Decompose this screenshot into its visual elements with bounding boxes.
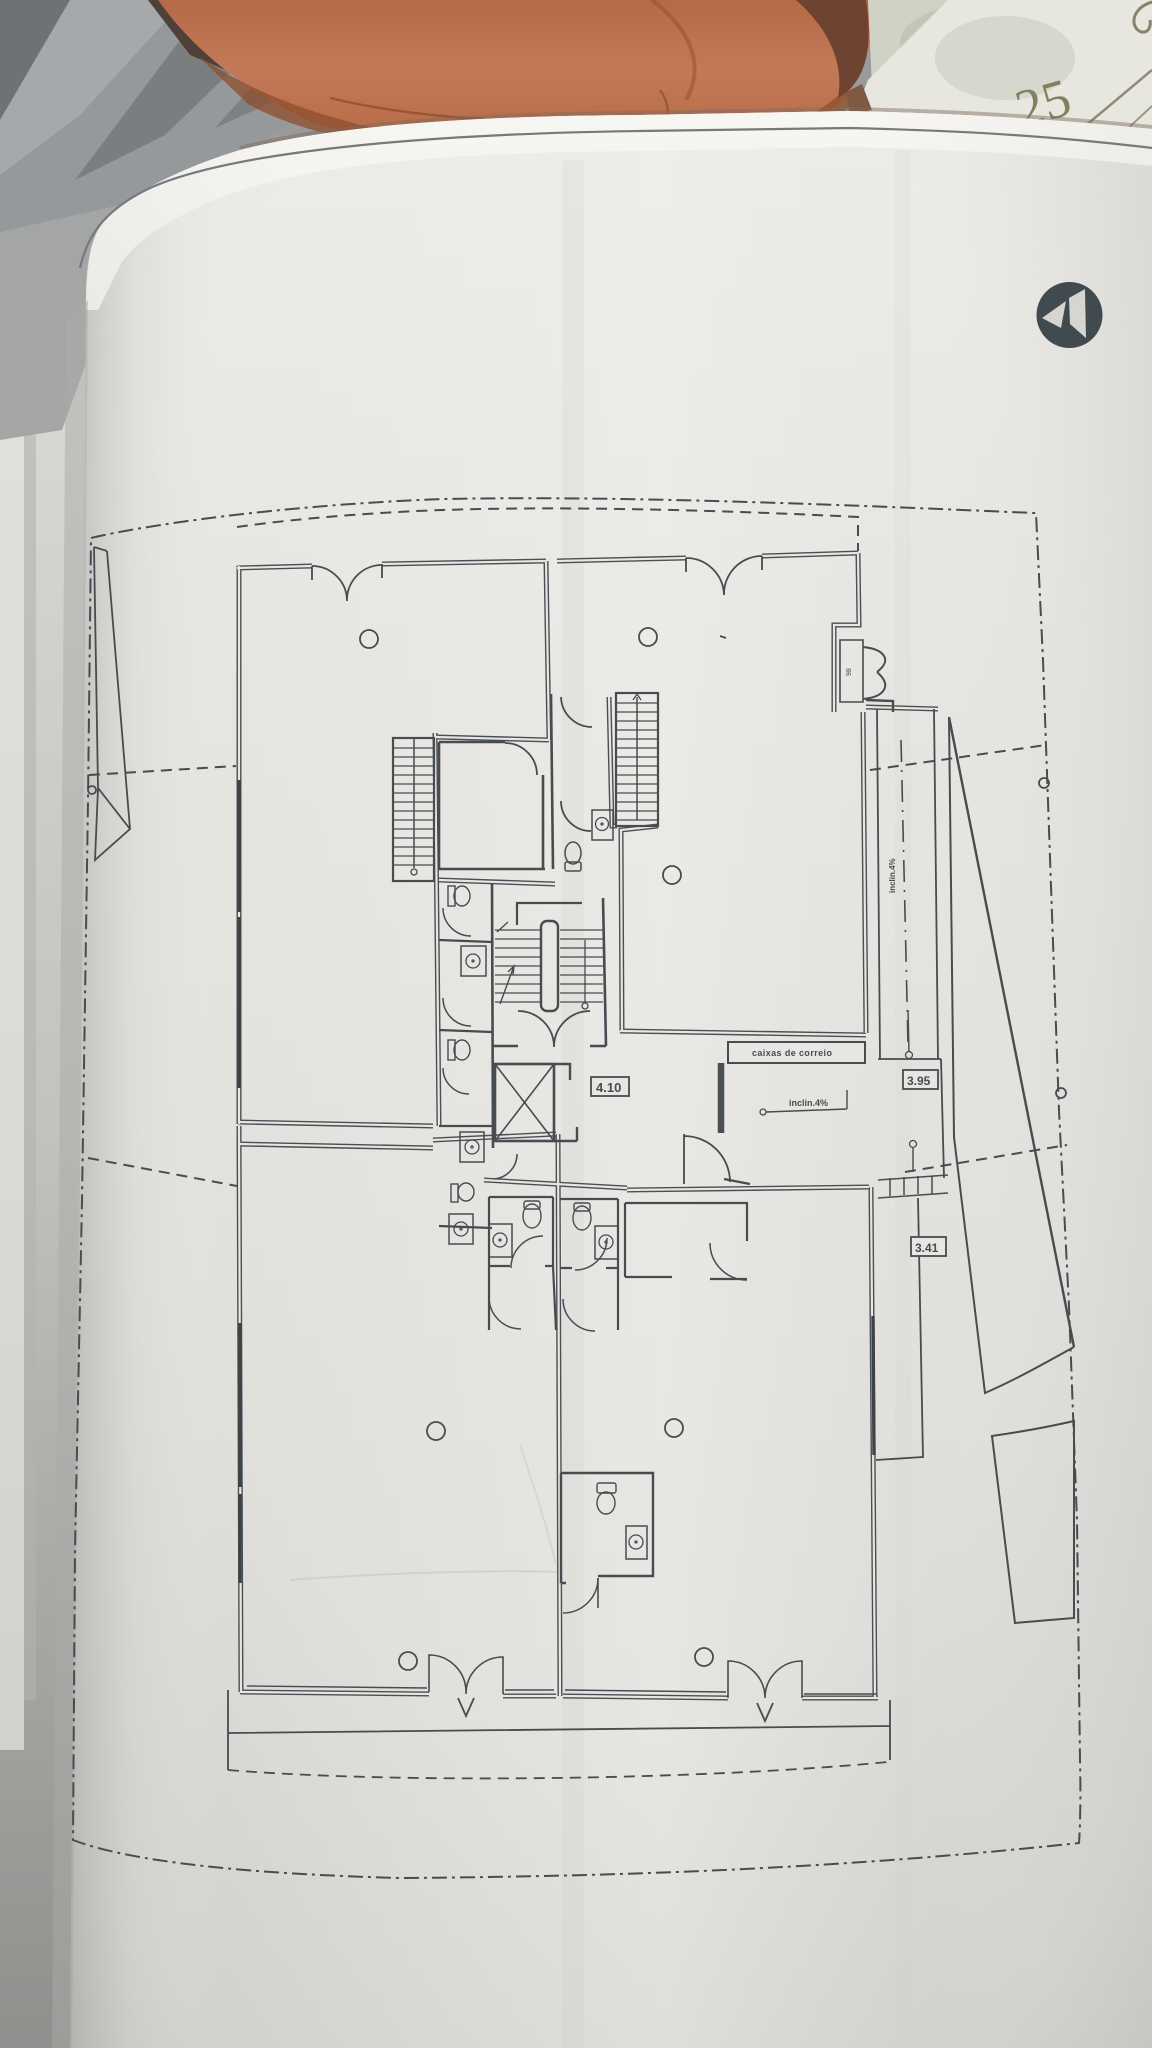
svg-text:3.95: 3.95 [907,1074,931,1088]
svg-text:inclin.4%: inclin.4% [789,1098,828,1108]
svg-text:inclin.4%: inclin.4% [888,858,897,893]
svg-text:4.10: 4.10 [596,1080,621,1095]
svg-text:3.41: 3.41 [915,1241,939,1255]
svg-text:caixas de correio: caixas de correio [752,1048,832,1058]
svg-text:98: 98 [846,668,853,676]
